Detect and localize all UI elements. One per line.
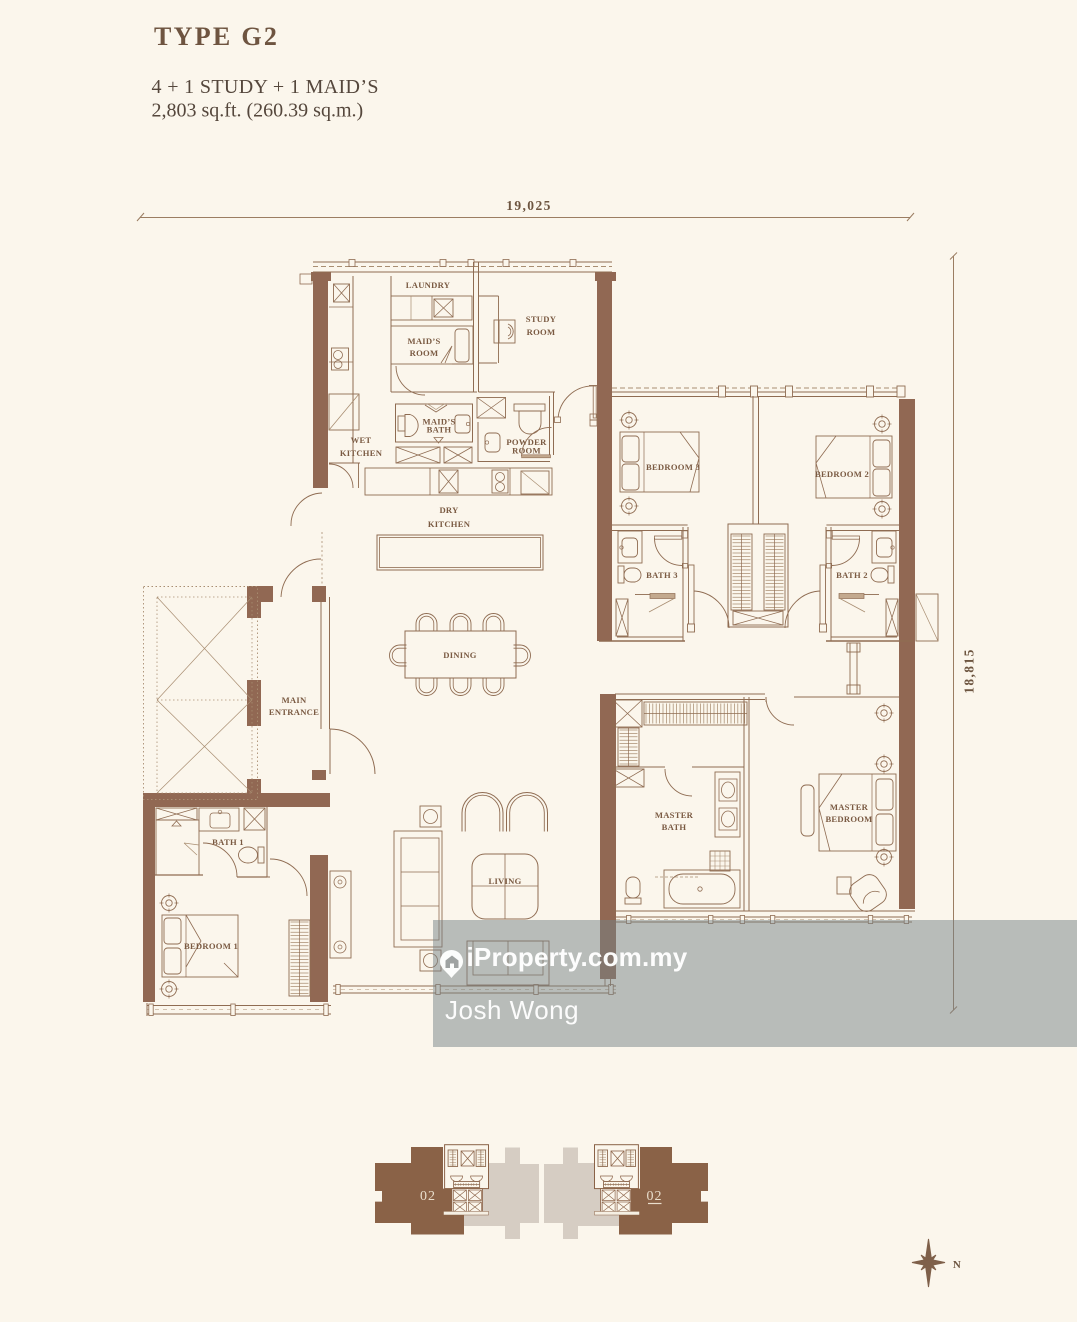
svg-text:BATH: BATH — [662, 822, 687, 832]
svg-text:N: N — [953, 1259, 961, 1271]
svg-text:18,815: 18,815 — [962, 648, 977, 694]
svg-text:ROOM: ROOM — [512, 446, 541, 456]
svg-text:LIVING: LIVING — [488, 876, 521, 886]
svg-text:iProperty.com.my: iProperty.com.my — [467, 942, 688, 972]
svg-text:02: 02 — [647, 1189, 663, 1204]
svg-text:2,803 sq.ft. (260.39 sq.m.): 2,803 sq.ft. (260.39 sq.m.) — [152, 100, 364, 122]
svg-text:BEDROOM 2: BEDROOM 2 — [815, 469, 869, 479]
svg-text:MAIN: MAIN — [282, 695, 307, 705]
svg-text:BATH 3: BATH 3 — [646, 570, 678, 580]
svg-text:BEDROOM: BEDROOM — [825, 814, 872, 824]
svg-text:DRY: DRY — [439, 505, 459, 515]
svg-text:Josh Wong: Josh Wong — [445, 995, 579, 1025]
svg-text:MAID’S: MAID’S — [407, 336, 440, 346]
svg-text:02: 02 — [420, 1189, 436, 1204]
svg-text:STUDY: STUDY — [526, 314, 557, 324]
svg-text:KITCHEN: KITCHEN — [340, 448, 383, 458]
svg-text:MASTER: MASTER — [655, 810, 694, 820]
svg-text:BATH 2: BATH 2 — [836, 570, 868, 580]
svg-text:TYPE G2: TYPE G2 — [154, 22, 279, 51]
svg-text:DINING: DINING — [443, 650, 477, 660]
svg-text:MASTER: MASTER — [830, 802, 869, 812]
svg-text:ROOM: ROOM — [410, 348, 439, 358]
svg-text:BEDROOM 1: BEDROOM 1 — [184, 941, 238, 951]
svg-text:BEDROOM 3: BEDROOM 3 — [646, 462, 700, 472]
svg-text:ROOM: ROOM — [527, 327, 556, 337]
svg-text:KITCHEN: KITCHEN — [428, 519, 471, 529]
svg-text:BATH: BATH — [427, 425, 452, 435]
svg-text:WET: WET — [351, 435, 372, 445]
svg-text:19,025: 19,025 — [506, 198, 552, 213]
svg-text:LAUNDRY: LAUNDRY — [406, 280, 451, 290]
svg-text:ENTRANCE: ENTRANCE — [269, 707, 319, 717]
svg-text:4 + 1 STUDY + 1 MAID’S: 4 + 1 STUDY + 1 MAID’S — [152, 76, 379, 98]
